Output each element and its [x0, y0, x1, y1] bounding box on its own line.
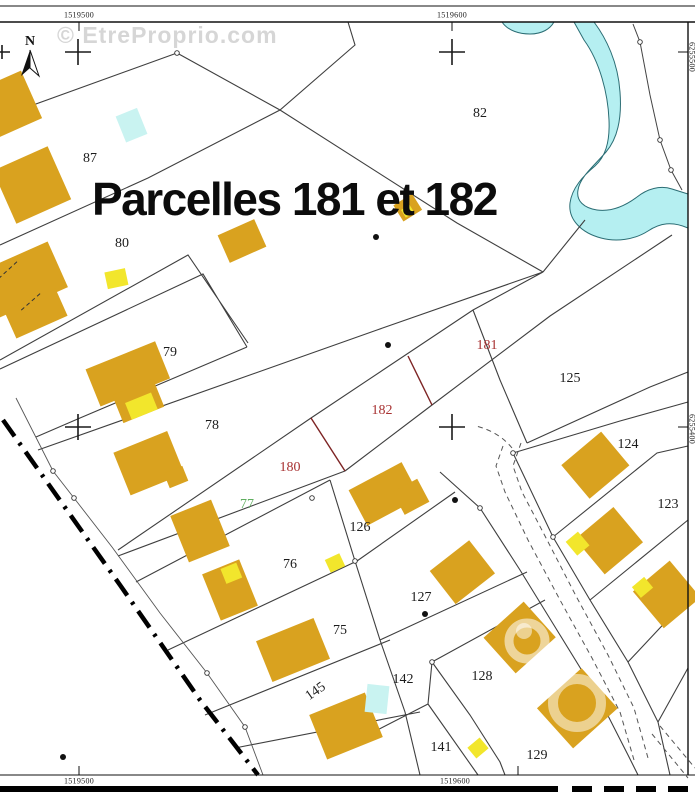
- coord-bottom-left: 1519500: [64, 777, 94, 786]
- coord-bottom-right: 1519600: [440, 777, 470, 786]
- building: [566, 504, 643, 580]
- shed-yellow: [325, 553, 345, 572]
- scale-bar: [0, 786, 688, 792]
- parcel-label-182: 182: [372, 403, 393, 419]
- coord-right-upper: 6255500: [688, 42, 695, 72]
- coord-top-right: 1519600: [437, 11, 467, 20]
- parcel-label-127: 127: [411, 590, 432, 606]
- building: [170, 500, 230, 563]
- parcel-label-181: 181: [477, 338, 498, 354]
- building: [0, 241, 79, 342]
- building: [0, 146, 71, 223]
- parcel-label-124: 124: [618, 437, 639, 453]
- coord-right-lower: 6255400: [688, 414, 695, 444]
- parcel-label-79: 79: [163, 345, 177, 361]
- building: [430, 540, 495, 604]
- map-title: Parcelles 181 et 182: [92, 172, 497, 226]
- parcel-label-125: 125: [560, 371, 581, 387]
- coord-top-left: 1519500: [64, 11, 94, 20]
- parcel-label-180: 180: [280, 460, 301, 476]
- map-canvas: [0, 0, 695, 800]
- shed-yellow: [104, 268, 128, 289]
- parcel-label-75: 75: [333, 623, 347, 639]
- parcel-label-142: 142: [393, 672, 414, 688]
- parcel-label-123: 123: [658, 497, 679, 513]
- north-arrow-icon: [21, 50, 39, 76]
- parcel-label-82: 82: [473, 106, 487, 122]
- pond: [502, 22, 554, 34]
- building: [630, 558, 695, 629]
- parcel-label-141: 141: [431, 740, 452, 756]
- building: [113, 431, 188, 503]
- shed-yellow: [467, 737, 488, 758]
- survey-line: [633, 24, 682, 190]
- watermark: © EtreProprio.com: [57, 22, 278, 49]
- parcel-label-129: 129: [527, 748, 548, 764]
- parcel-label-128: 128: [472, 669, 493, 685]
- pool: [116, 108, 148, 143]
- building: [256, 618, 330, 682]
- parcel-label-78: 78: [205, 418, 219, 434]
- parcel-label-80: 80: [115, 236, 129, 252]
- pool: [365, 684, 390, 714]
- parcel-label-76: 76: [283, 557, 297, 573]
- building: [0, 71, 42, 140]
- parcel-label-87: 87: [83, 151, 97, 167]
- north-arrow-label: N: [25, 34, 35, 50]
- river: [502, 22, 688, 240]
- cadastral-map: © EtreProprio.com Parcelles 181 et 182 N…: [0, 0, 695, 800]
- parcel-label-77: 77: [240, 497, 254, 513]
- parcel-label-126: 126: [350, 520, 371, 536]
